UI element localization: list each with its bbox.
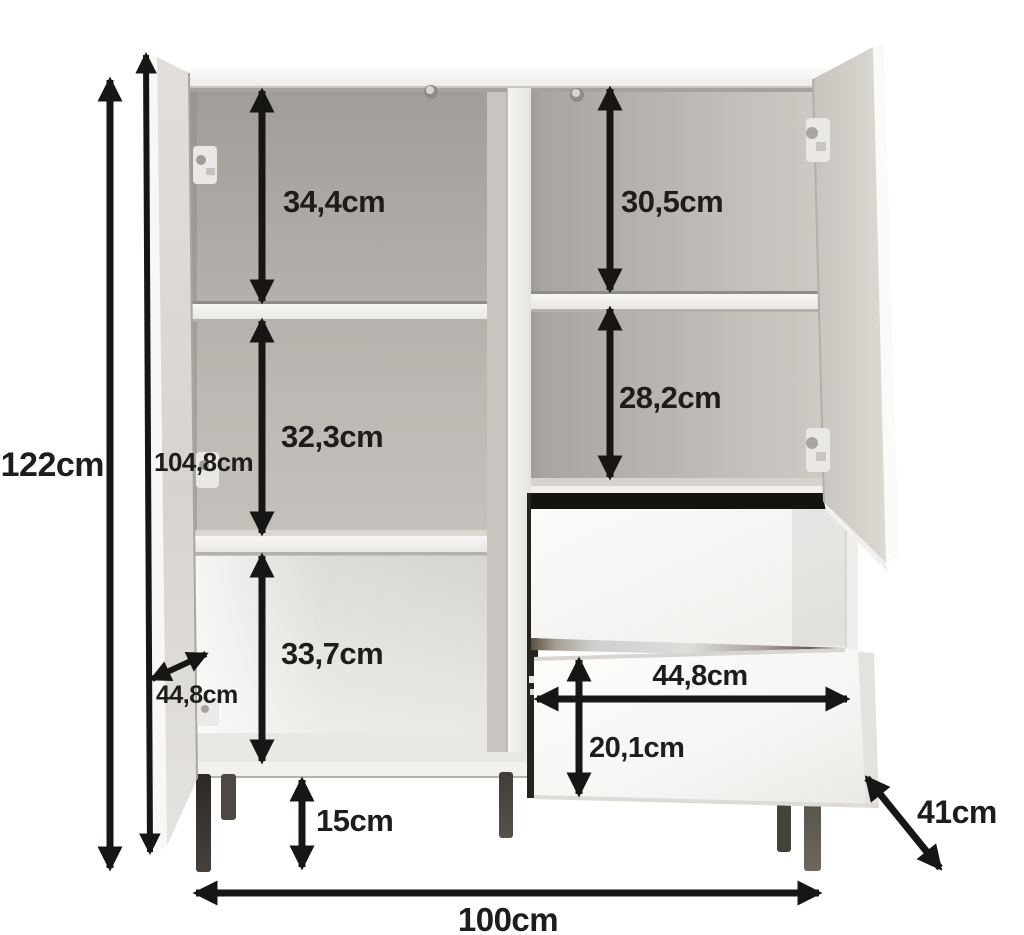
left-shelf-upper <box>188 301 487 322</box>
cam-screw-right <box>570 88 584 102</box>
dim-total-height-label: 122cm <box>1 446 104 484</box>
leg-rear-left <box>221 774 236 820</box>
dim-leg-height: 15cm <box>302 780 393 867</box>
dim-leg-height-label: 15cm <box>316 803 393 838</box>
right-door-hinge-bottom <box>806 428 830 472</box>
dim-right-top-label: 30,5cm <box>621 184 723 219</box>
right-door-hinge-top <box>806 118 830 162</box>
dim-right-second-label: 28,2cm <box>619 380 721 415</box>
leg-middle <box>499 772 513 838</box>
left-bottom-compartment-floor <box>188 733 487 753</box>
dim-door-width-label: 44,8cm <box>156 681 238 709</box>
cabinet-diagram-canvas: 122cm 104,8cm 34,4cm 32,3cm 33,7cm 30,5c… <box>0 0 1024 935</box>
dim-total-width-label: 100cm <box>458 901 558 935</box>
drawer-top-shelf <box>530 478 846 494</box>
top-drawer-door-shadow <box>792 509 846 646</box>
cam-screw-left <box>424 85 438 99</box>
left-shelf-lower <box>188 530 487 555</box>
dim-left-bottom-label: 33,7cm <box>281 636 383 671</box>
dim-left-top-label: 34,4cm <box>283 184 385 219</box>
dim-drawer-height-label: 20,1cm <box>589 732 684 764</box>
leg-front-left <box>196 774 211 872</box>
dim-depth: 41cm <box>867 778 997 868</box>
dim-door-height-label: 104,8cm <box>154 447 253 477</box>
right-shelf <box>530 291 846 312</box>
dim-left-middle-label: 32,3cm <box>281 419 383 454</box>
left-door-hinge-top <box>193 146 217 184</box>
dim-drawer-width-label: 44,8cm <box>652 660 747 692</box>
furniture-dimension-diagram: 122cm 104,8cm 34,4cm 32,3cm 33,7cm 30,5c… <box>0 0 1024 935</box>
right-column-side-shadow <box>530 92 540 478</box>
dim-depth-label: 41cm <box>917 794 997 830</box>
drawer-top-gap <box>531 493 846 510</box>
dim-total-height: 122cm <box>1 80 110 868</box>
center-divider <box>487 86 531 757</box>
dim-door-height-arrow <box>146 55 150 852</box>
dim-total-width: 100cm <box>196 893 819 935</box>
